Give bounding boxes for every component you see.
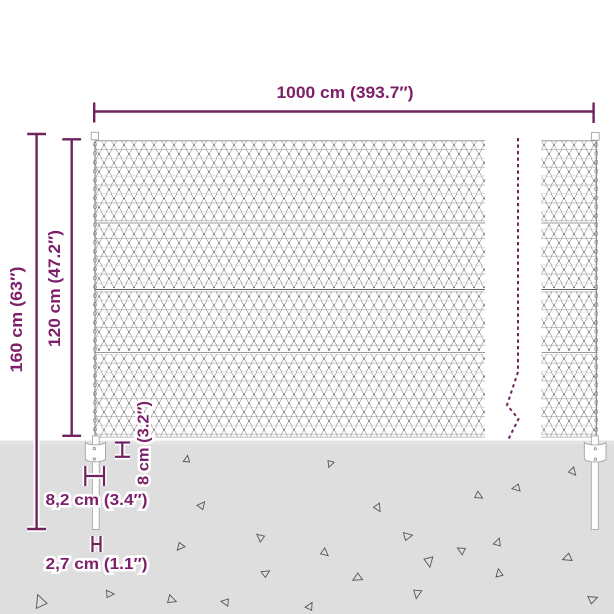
- svg-text:160 cm (63″): 160 cm (63″): [7, 267, 26, 373]
- svg-text:120 cm (47.2″): 120 cm (47.2″): [45, 230, 64, 347]
- svg-text:8,2 cm (3.4″): 8,2 cm (3.4″): [46, 492, 148, 509]
- svg-text:1000 cm (393.7″): 1000 cm (393.7″): [277, 83, 414, 102]
- svg-text:2,7 cm (1.1″): 2,7 cm (1.1″): [46, 556, 148, 573]
- svg-text:8 cm (3.2″): 8 cm (3.2″): [136, 401, 153, 485]
